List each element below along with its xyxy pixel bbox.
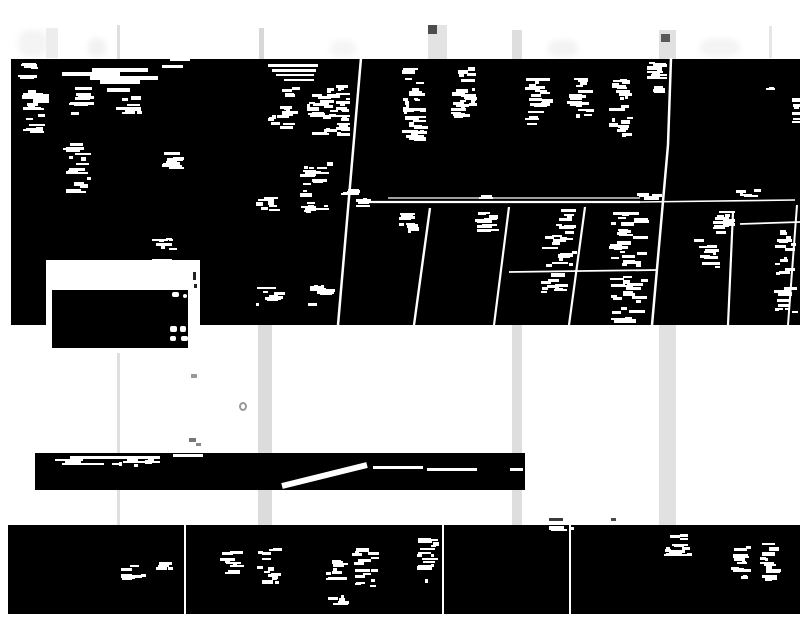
dash-mark xyxy=(611,518,616,521)
wisp-mark xyxy=(196,443,201,446)
dash-mark xyxy=(549,518,563,521)
wisp-mark xyxy=(191,374,197,378)
ring-mark xyxy=(239,402,247,411)
binarized-photo-canvas xyxy=(0,0,800,618)
wisp-mark xyxy=(189,438,196,442)
gray-mark-layer xyxy=(0,0,800,618)
